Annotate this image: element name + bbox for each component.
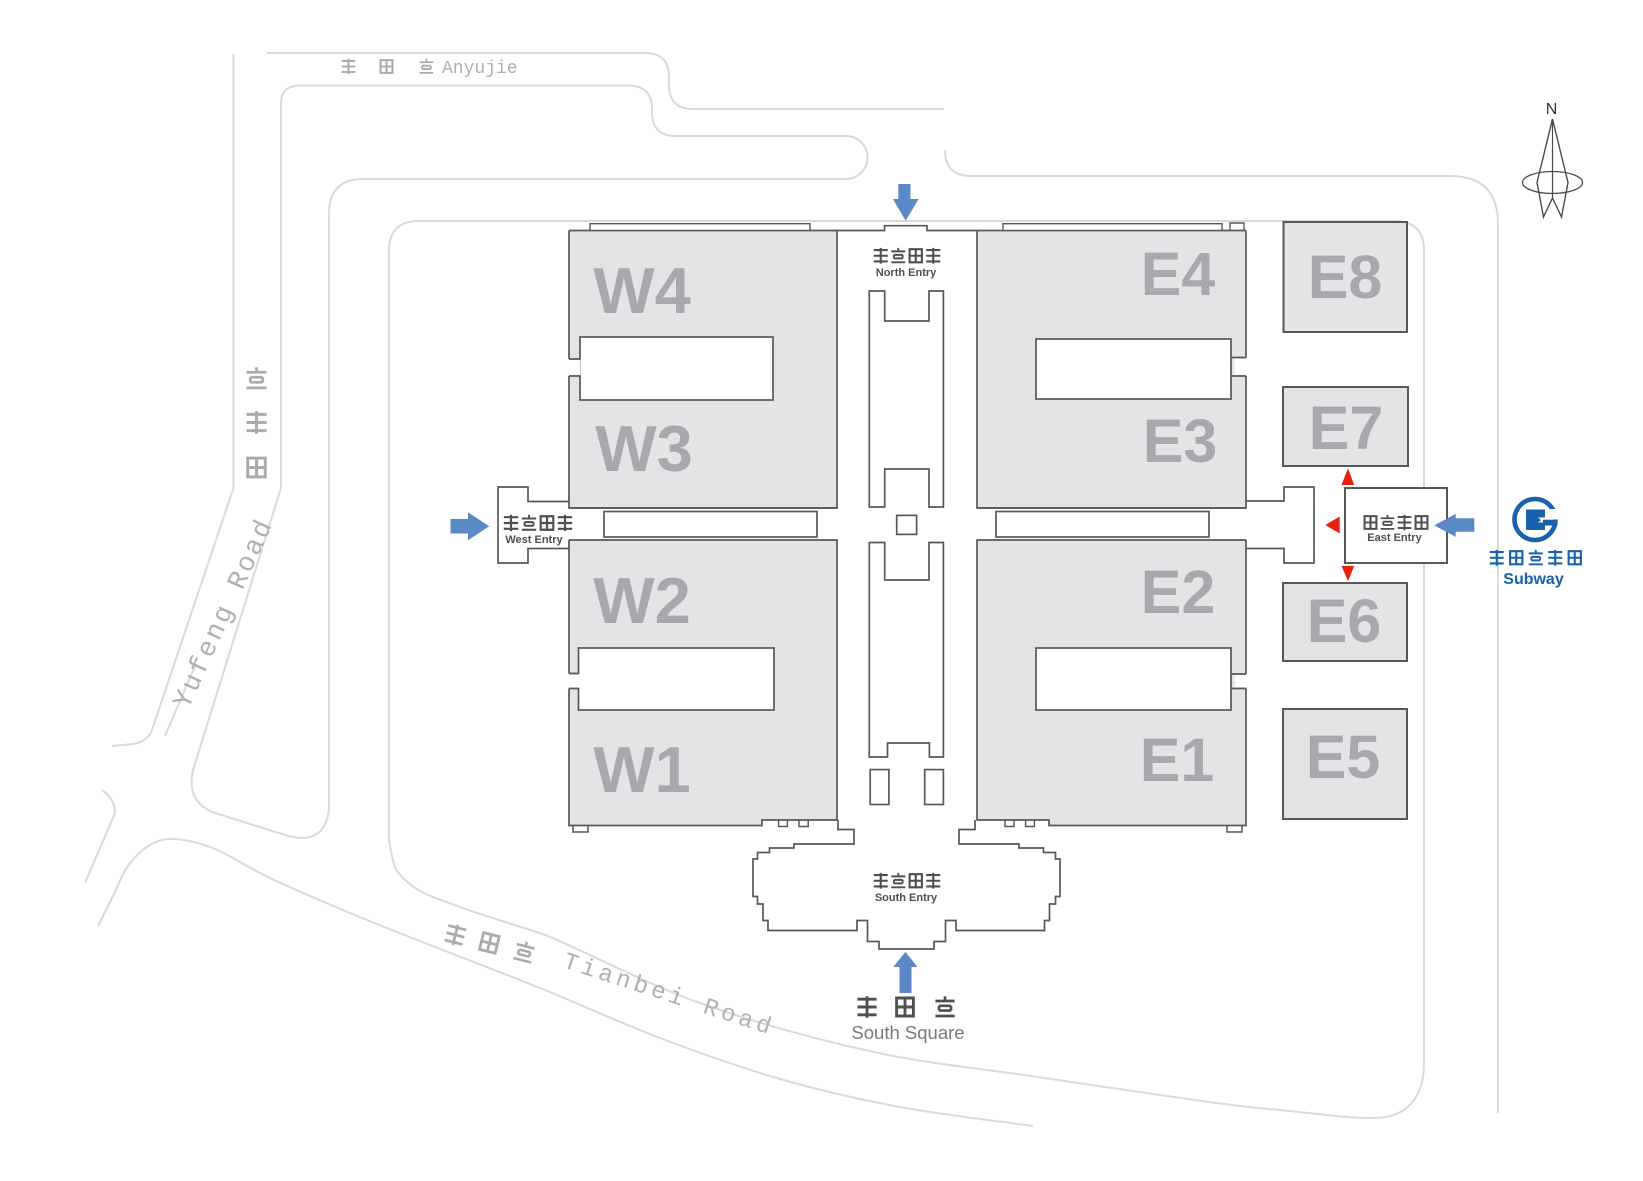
- svg-text:W4: W4: [593, 254, 691, 327]
- svg-text:Anyujie: Anyujie: [442, 59, 518, 79]
- svg-text:E2: E2: [1141, 558, 1216, 626]
- svg-text:E1: E1: [1140, 726, 1215, 794]
- svg-text:North Entry: North Entry: [876, 267, 937, 279]
- svg-text:South Entry: South Entry: [875, 892, 938, 904]
- svg-text:East Entry: East Entry: [1367, 532, 1422, 544]
- svg-text:West Entry: West Entry: [505, 534, 563, 546]
- svg-text:W1: W1: [593, 733, 691, 806]
- svg-text:W3: W3: [595, 412, 693, 485]
- svg-text:W2: W2: [593, 564, 691, 637]
- svg-text:E4: E4: [1141, 240, 1216, 308]
- svg-text:Yufeng Road: Yufeng Road: [169, 514, 282, 714]
- svg-text:E7: E7: [1309, 394, 1384, 462]
- svg-text:Subway: Subway: [1503, 571, 1564, 588]
- svg-text:E3: E3: [1143, 407, 1218, 475]
- svg-text:South Square: South Square: [851, 1022, 964, 1043]
- svg-text:E8: E8: [1308, 243, 1383, 311]
- svg-text:E5: E5: [1306, 723, 1381, 791]
- svg-text:E6: E6: [1307, 587, 1382, 655]
- svg-text:Tianbei Road: Tianbei Road: [560, 949, 778, 1043]
- svg-text:N: N: [1546, 101, 1558, 118]
